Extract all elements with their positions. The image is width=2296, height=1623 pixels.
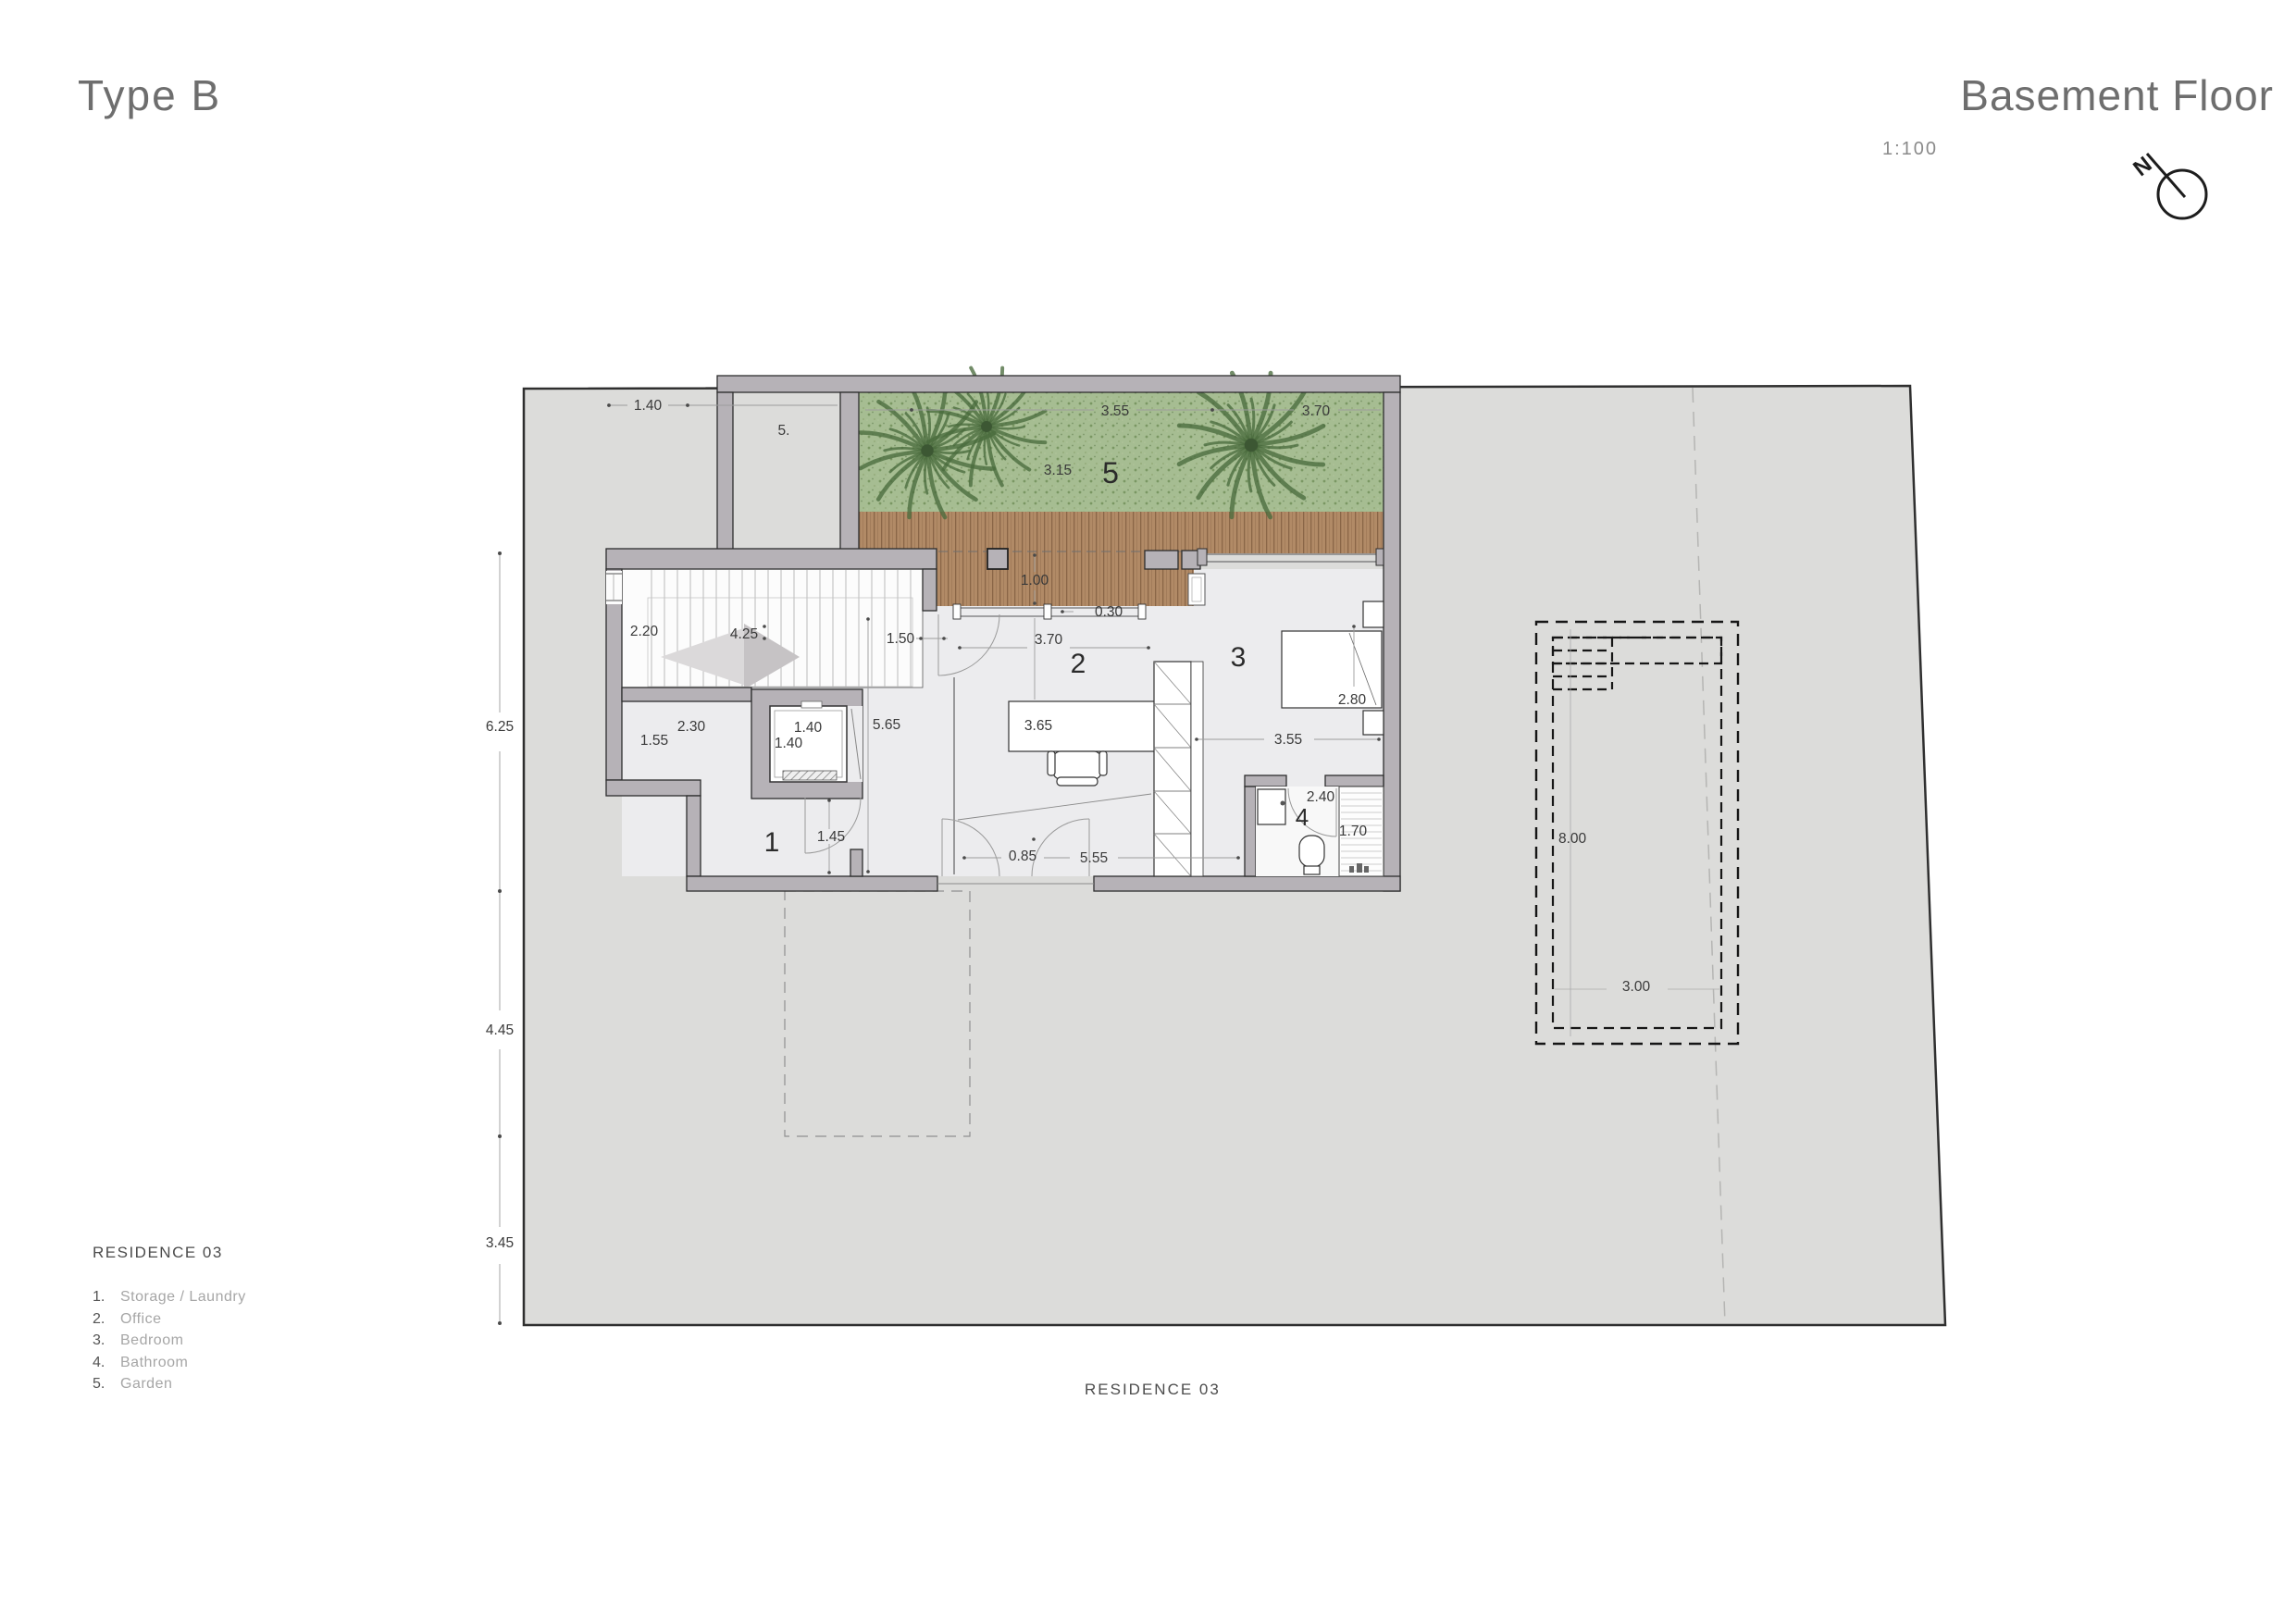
room-number-office: 2: [1071, 649, 1086, 679]
stair-window: [606, 571, 622, 604]
vanity-sink: [1258, 789, 1285, 824]
office-chair: [1053, 751, 1101, 779]
dim-label: 2.20: [630, 624, 659, 639]
dim-label: 5.55: [1080, 850, 1108, 866]
dim-label: 2.40: [1307, 789, 1335, 805]
dim-label: 5.: [778, 423, 790, 439]
elevator-hatch: [783, 771, 837, 780]
nightstand: [1363, 711, 1384, 735]
dim-label: 3.55: [1101, 403, 1129, 419]
dim-label: 3.70: [1035, 632, 1063, 648]
dim-label: 2.80: [1338, 692, 1367, 708]
toilet: [1299, 836, 1324, 867]
dim-label: 1.40: [794, 720, 823, 736]
dim-label: 3.65: [1024, 718, 1052, 734]
dim-label: 0.30: [1095, 604, 1123, 620]
dim-label: 8.00: [1558, 831, 1587, 847]
dim-label: 3.15: [1044, 463, 1072, 478]
room-number-garden: 5: [1102, 456, 1119, 489]
floor-plan: 1.40 5. 3.55 3.70 3.15 1.00 0.30 2.20 4.…: [0, 0, 2296, 1623]
nightstand: [1363, 601, 1384, 627]
dim-label: 0.85: [1009, 849, 1036, 864]
room-number-storage: 1: [764, 827, 780, 858]
room-number-bathroom: 4: [1296, 803, 1309, 831]
dim-label: 3.00: [1622, 979, 1651, 995]
dim-label: 3.70: [1302, 403, 1331, 419]
dim-label: 1.50: [887, 631, 915, 647]
dim-label: 4.45: [486, 1022, 514, 1038]
dim-label: 1.00: [1021, 573, 1049, 588]
north-arrow-icon: N: [2128, 152, 2206, 218]
dim-label: 1.40: [775, 736, 803, 751]
deck-column: [987, 549, 1008, 569]
dim-label: 2.30: [677, 719, 706, 735]
dim-label: 5.65: [873, 717, 900, 733]
dim-label: 3.45: [486, 1235, 514, 1251]
dim-label: 1.70: [1339, 824, 1368, 839]
dim-label: 1.45: [817, 829, 845, 845]
dim-label: 4.25: [730, 626, 758, 642]
north-label: N: [2128, 152, 2156, 181]
elevator: [751, 689, 863, 799]
dim-label: 3.55: [1274, 732, 1302, 748]
room-number-bedroom: 3: [1231, 642, 1247, 673]
staircase: [622, 569, 923, 689]
dim-label: 1.55: [640, 733, 668, 749]
dim-label: 1.40: [634, 398, 663, 414]
dim-label: 6.25: [486, 719, 514, 735]
